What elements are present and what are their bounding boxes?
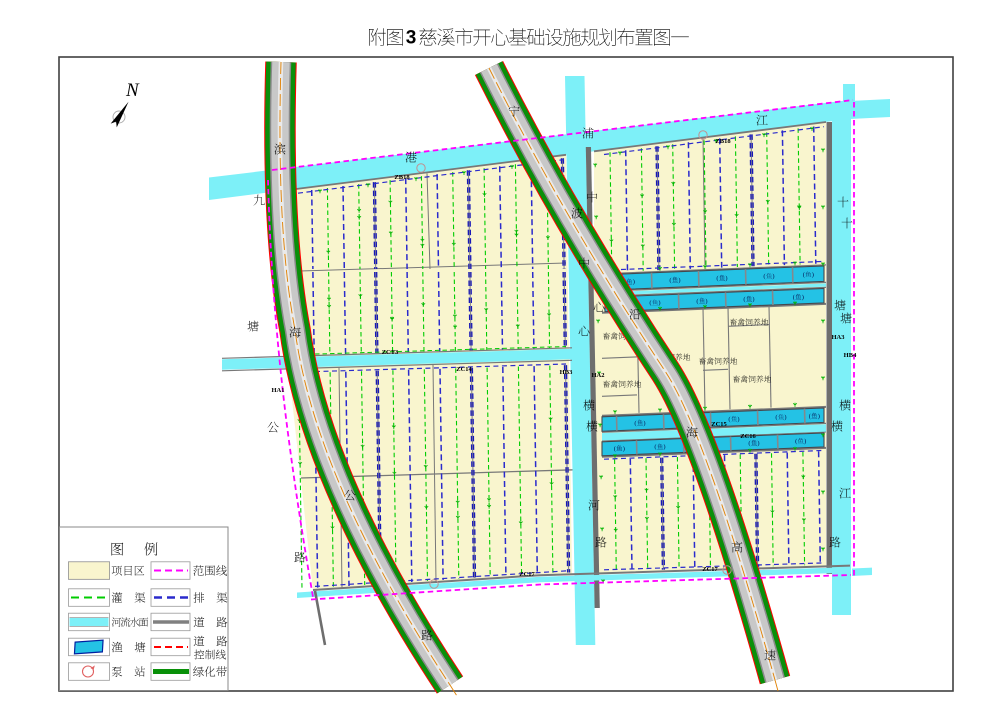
svg-text:): ) (804, 438, 806, 445)
svg-text:ZCT3: ZCT3 (382, 349, 399, 356)
svg-text:3: 3 (406, 28, 417, 49)
svg-text:): ) (757, 440, 759, 447)
svg-text:ZC15: ZC15 (711, 421, 727, 428)
svg-text:ZC17: ZC17 (519, 571, 535, 578)
svg-text:(: ( (728, 416, 730, 423)
svg-text:HA2: HA2 (592, 372, 605, 379)
svg-text:): ) (633, 279, 635, 286)
svg-text:HA1: HA1 (272, 387, 285, 394)
svg-text:(: ( (634, 420, 636, 427)
svg-text:): ) (658, 300, 660, 307)
svg-text:(: ( (795, 438, 797, 445)
svg-text:): ) (623, 445, 625, 452)
svg-text:(: ( (614, 445, 616, 452)
svg-text:(: ( (654, 444, 656, 451)
svg-text:): ) (812, 272, 814, 279)
svg-text:(: ( (743, 296, 745, 303)
svg-text:): ) (643, 420, 645, 427)
svg-text:ZC14: ZC14 (456, 366, 472, 373)
svg-text:): ) (663, 444, 665, 451)
svg-text:(: ( (775, 414, 777, 421)
svg-text:): ) (752, 296, 754, 303)
svg-text:ZC16: ZC16 (740, 433, 756, 440)
svg-text:HA3: HA3 (832, 334, 846, 341)
svg-text:(: ( (649, 300, 651, 307)
svg-text:(: ( (716, 275, 718, 282)
svg-text:): ) (737, 416, 739, 423)
svg-text:): ) (818, 413, 820, 420)
svg-text:HB4: HB4 (844, 352, 857, 359)
svg-text:): ) (772, 273, 774, 280)
svg-text:(: ( (803, 272, 805, 279)
svg-text:): ) (705, 298, 707, 305)
svg-text:(: ( (669, 277, 671, 284)
svg-text:): ) (802, 294, 804, 301)
svg-text:(: ( (809, 413, 811, 420)
svg-text:): ) (784, 414, 786, 421)
svg-text:HB3: HB3 (560, 369, 573, 376)
svg-text:ZC17: ZC17 (702, 566, 718, 573)
svg-text:N: N (125, 80, 140, 101)
svg-text:(: ( (763, 273, 765, 280)
svg-text:(: ( (696, 298, 698, 305)
svg-text:ZB18: ZB18 (715, 138, 731, 145)
svg-text:(: ( (793, 294, 795, 301)
svg-text:): ) (725, 275, 727, 282)
svg-text:(: ( (748, 440, 750, 447)
svg-text:ZB18: ZB18 (394, 174, 410, 181)
svg-text:): ) (678, 277, 680, 284)
